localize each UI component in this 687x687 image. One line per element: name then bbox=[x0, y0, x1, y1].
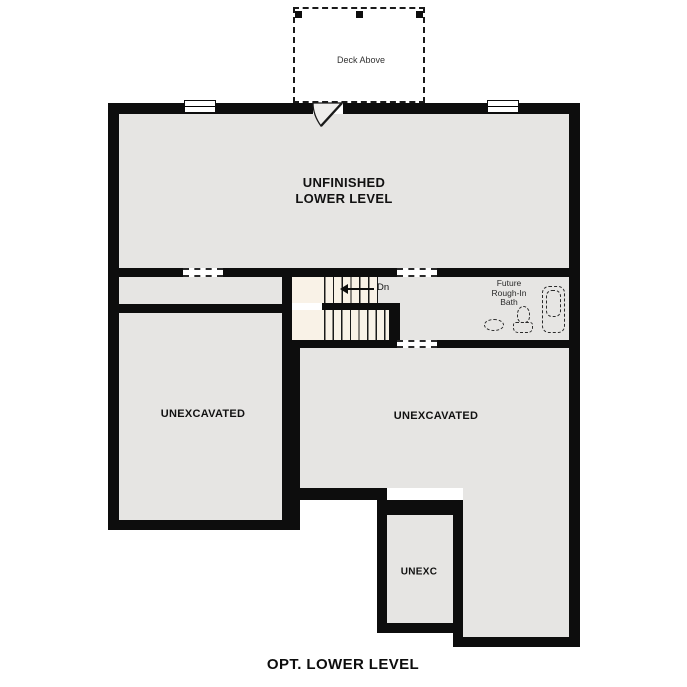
wall-opening bbox=[397, 268, 437, 277]
window-icon bbox=[184, 100, 216, 113]
window-icon bbox=[487, 100, 519, 113]
deck-post-icon bbox=[416, 11, 423, 18]
door-swing-icon bbox=[312, 102, 344, 130]
stairs-down-arrowhead-icon bbox=[340, 284, 348, 294]
wall-left-room-bottom bbox=[108, 520, 300, 530]
room-label-unfinished: UNFINISHED LOWER LEVEL bbox=[295, 175, 392, 207]
deck-post-icon bbox=[356, 11, 363, 18]
room-label-bath: Future Rough-In Bath bbox=[492, 279, 527, 308]
room-label-unexcavated-left: UNEXCAVATED bbox=[161, 408, 246, 420]
deck-post-icon bbox=[295, 11, 302, 18]
wall-unexc-top bbox=[387, 500, 463, 515]
stair-divider-wall bbox=[322, 303, 398, 310]
wall-unexc-left bbox=[377, 488, 387, 633]
wall-opening bbox=[183, 268, 223, 277]
wall-unexc-bottom bbox=[377, 623, 463, 633]
corridor-area bbox=[119, 277, 282, 304]
room-unexcavated-right-lower bbox=[463, 488, 569, 637]
wall-bottom-right bbox=[453, 637, 580, 647]
wall-opening bbox=[397, 340, 437, 348]
bath-label-line: Bath bbox=[492, 298, 527, 308]
wall-right-room-left bbox=[290, 340, 300, 530]
stair-treads-lower bbox=[324, 310, 394, 342]
wall-mid-upper bbox=[108, 268, 580, 277]
toilet-icon bbox=[513, 322, 533, 333]
stair-treads-upper bbox=[324, 277, 378, 303]
wall-right bbox=[569, 103, 580, 647]
room-label-line: LOWER LEVEL bbox=[295, 191, 392, 207]
plan-title: OPT. LOWER LEVEL bbox=[267, 656, 419, 673]
toilet-icon bbox=[517, 306, 530, 323]
wall-mid-lower-left bbox=[108, 304, 292, 313]
room-label-line: UNFINISHED bbox=[295, 175, 392, 191]
floor-drain-icon bbox=[484, 319, 504, 331]
stairs-down-arrow-icon bbox=[347, 288, 374, 290]
wall-notch-top bbox=[298, 488, 387, 500]
tub-inner-icon bbox=[546, 290, 561, 317]
deck-outline: Deck Above bbox=[293, 7, 425, 103]
deck-label: Deck Above bbox=[337, 55, 385, 65]
floor-plan: Deck Above Dn bbox=[0, 0, 687, 687]
room-label-unexcavated-right: UNEXCAVATED bbox=[394, 410, 479, 422]
wall-left bbox=[108, 103, 119, 530]
room-label-unexc: UNEXC bbox=[401, 567, 438, 578]
stairs-down-label: Dn bbox=[377, 282, 389, 293]
